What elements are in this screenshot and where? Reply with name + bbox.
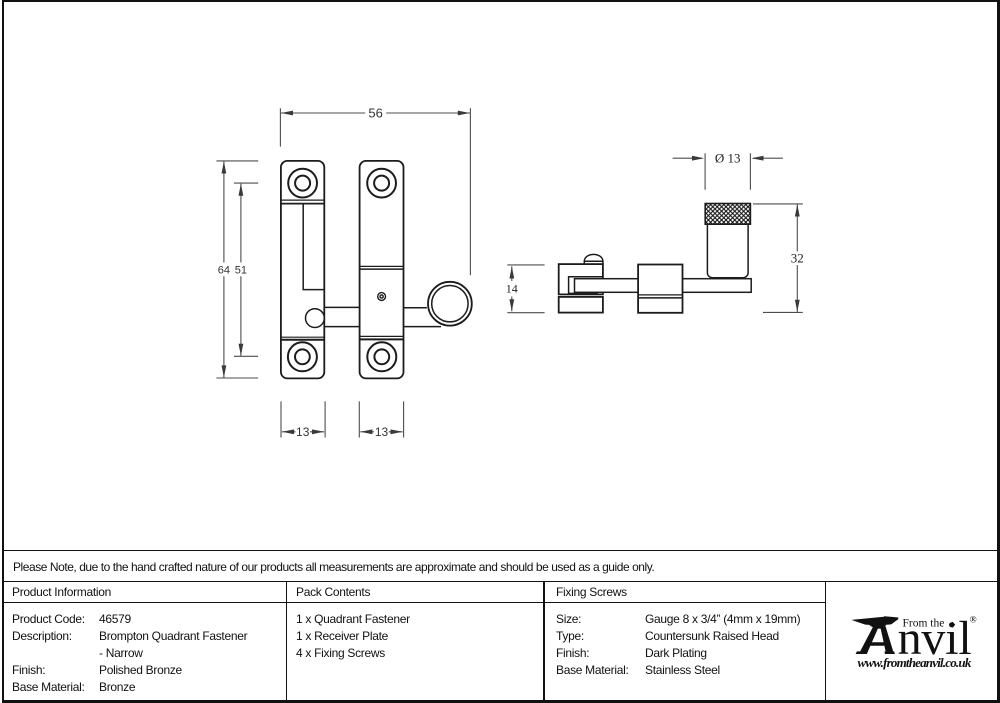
- svg-text:13: 13: [375, 425, 389, 439]
- svg-text:Ø 13: Ø 13: [715, 151, 741, 166]
- svg-text:56: 56: [368, 106, 382, 121]
- svg-text:www.fromtheanvil.co.uk: www.fromtheanvil.co.uk: [858, 655, 972, 670]
- svg-text:13: 13: [296, 425, 310, 439]
- svg-text:®: ®: [970, 615, 977, 626]
- svg-text:32: 32: [791, 251, 804, 266]
- svg-text:64: 64: [218, 264, 230, 276]
- svg-text:14: 14: [506, 282, 518, 296]
- svg-text:51: 51: [235, 264, 247, 276]
